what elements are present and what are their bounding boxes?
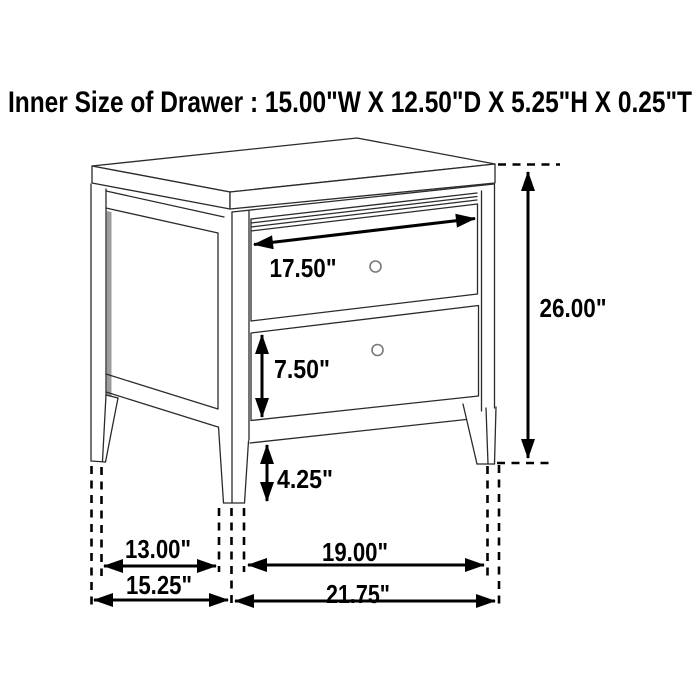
dimension-leg-height: 4.25" — [267, 445, 333, 501]
nightstand-drawing — [91, 138, 496, 503]
dimension-label: 17.50" — [270, 253, 337, 283]
dimension-label: 19.00" — [322, 537, 388, 567]
dimension-label: 26.00" — [540, 293, 607, 323]
panel-shadow-strip — [107, 211, 112, 396]
dimension-label: 4.25" — [277, 464, 333, 494]
dimension-diagram-page: Inner Size of Drawer : 15.00"W X 12.50"D… — [0, 0, 700, 700]
back-left-leg — [91, 395, 118, 462]
dimension-width-between-legs: 19.00" — [248, 537, 484, 567]
nightstand-dimension-diagram: Inner Size of Drawer : 15.00"W X 12.50"D… — [0, 0, 700, 700]
front-right-leg — [463, 404, 496, 464]
top-drawer-knob — [370, 261, 381, 272]
dimension-overall-depth: 15.25" — [94, 570, 228, 600]
bottom-drawer-knob — [372, 345, 383, 356]
dimension-depth-between-legs: 13.00" — [104, 534, 216, 566]
dimension-label: 15.25" — [126, 570, 192, 600]
front-left-leg — [219, 427, 249, 503]
dimension-label: 13.00" — [125, 534, 191, 564]
side-panel — [91, 184, 232, 503]
diagram-title: Inner Size of Drawer : 15.00"W X 12.50"D… — [8, 86, 692, 119]
dimension-label: 7.50" — [274, 354, 330, 384]
dimension-overall-height: 26.00" — [528, 172, 607, 458]
dimension-label: 21.75" — [326, 579, 390, 609]
dimension-overall-width: 21.75" — [235, 579, 495, 609]
